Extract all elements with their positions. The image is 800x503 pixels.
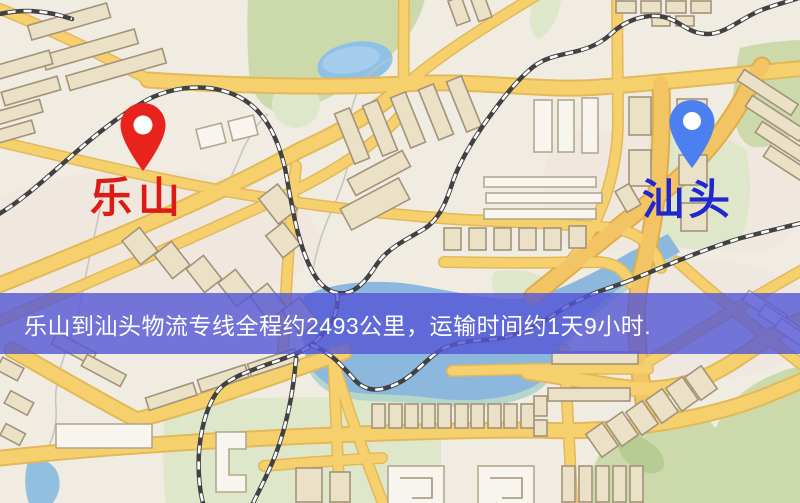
destination-pin-icon (670, 100, 715, 168)
origin-label: 乐山 (48, 177, 228, 219)
destination-pin (668, 99, 716, 170)
route-info-banner: 乐山到汕头物流专线全程约2493公里，运输时间约1天9小时. (0, 293, 800, 354)
destination-label: 汕头 (598, 179, 778, 221)
map-background (0, 0, 800, 503)
route-info-text: 乐山到汕头物流专线全程约2493公里，运输时间约1天9小时. (24, 307, 651, 341)
origin-pin-icon (121, 103, 166, 171)
origin-pin (119, 102, 167, 173)
map-image: 乐山到汕头物流专线全程约2493公里，运输时间约1天9小时. 乐山 汕头 (0, 0, 800, 503)
